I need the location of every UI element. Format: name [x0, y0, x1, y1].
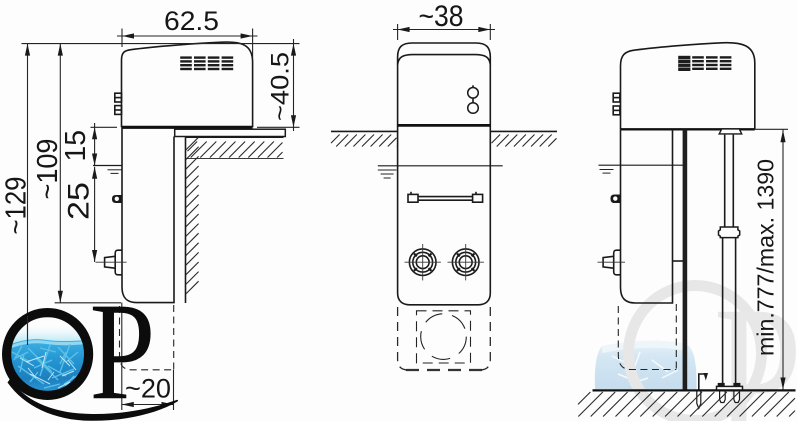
svg-text:~40.5: ~40.5: [267, 52, 295, 121]
svg-text:P: P: [89, 274, 155, 421]
svg-text:~109: ~109: [32, 139, 64, 200]
svg-text:15: 15: [60, 130, 92, 162]
svg-text:~38: ~38: [419, 0, 464, 33]
svg-text:62.5: 62.5: [164, 6, 219, 36]
svg-text:min.777/max. 1390: min.777/max. 1390: [753, 159, 779, 356]
svg-text:~129: ~129: [0, 177, 32, 235]
svg-text:25: 25: [63, 182, 96, 220]
